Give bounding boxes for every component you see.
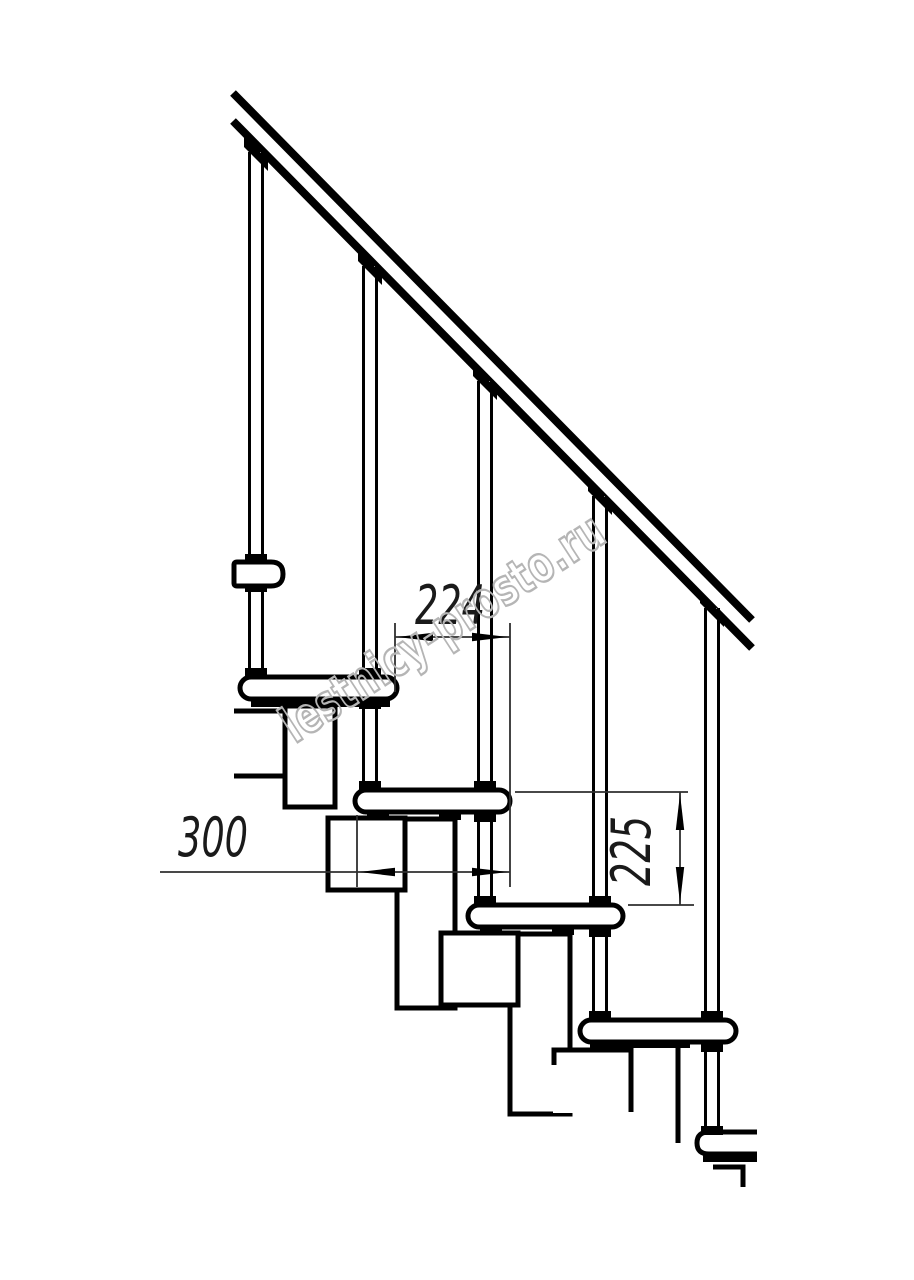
module-edge-step6-fadeout [713,1167,743,1187]
baluster-3 [479,381,492,907]
tread-6-partial [697,1132,757,1154]
collar [245,668,267,677]
dimension-value-rise: 225 [600,816,663,886]
collar [589,928,611,937]
collar [245,554,267,562]
module-box-step5-mask [553,1049,633,1113]
baluster-4 [594,496,607,1022]
dimension-value-depth: 300 [178,806,248,869]
collar [701,1126,723,1135]
tread-5-shadow-strip [590,1040,690,1048]
collar [474,813,496,822]
collar [359,781,381,790]
staircase-technical-drawing: 224 300 225 lestnicy-prosto.ru [0,0,914,1280]
collar [701,1011,723,1020]
module-box-step3 [328,818,405,890]
fittings [244,136,757,1162]
tread-5 [580,1020,736,1042]
baluster-1 [250,152,263,679]
fastener-tab [439,812,461,820]
baluster-5 [706,608,719,1137]
fastener-tab [552,927,574,935]
fastener-tab [480,927,502,935]
cut-stringer-lines [234,711,285,776]
fastener-tab [367,812,389,820]
tread-6-shadow-strip [703,1153,757,1162]
collar [589,1011,611,1020]
drawing-canvas: 224 300 225 lestnicy-prosto.ru [0,0,914,1280]
collar [474,781,496,790]
collar [474,896,496,905]
arrow-up-icon [676,794,684,830]
watermark-text: lestnicy-prosto.ru [271,502,616,754]
collar [701,1043,723,1052]
collar [589,896,611,905]
tread-3 [355,790,510,812]
arrow-down-icon [676,867,684,903]
module-box-step4 [441,933,518,1005]
tread-4 [468,905,623,927]
collar [245,584,267,592]
tread-end-view [234,562,283,586]
